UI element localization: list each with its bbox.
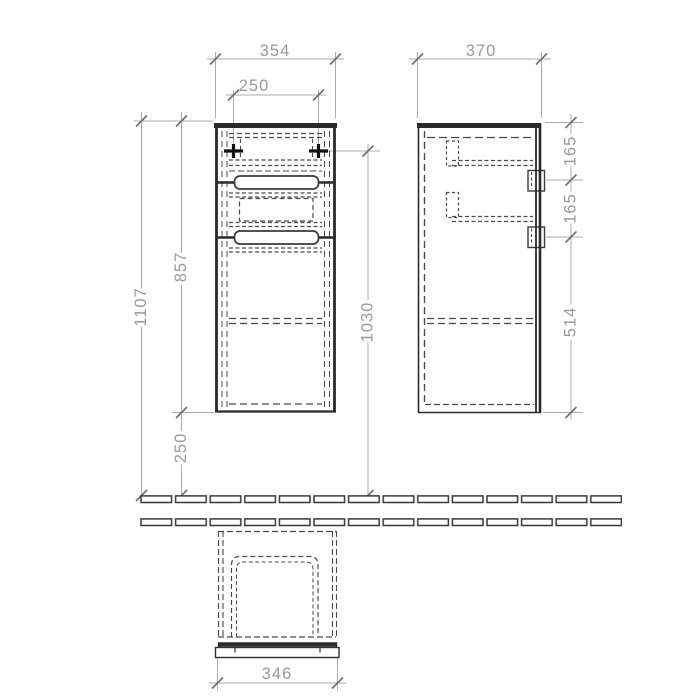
dim-label-top-to-handle: 165: [562, 136, 580, 167]
front-view-outline: [214, 123, 337, 412]
side-view: [417, 123, 545, 413]
top-view: [216, 531, 340, 658]
drawer-handle-2: [217, 231, 334, 244]
dim-label-cabinet-height: 857: [172, 252, 190, 283]
dim-mount-hole-spacing: [226, 90, 326, 148]
mounting-point-cross-right: [309, 144, 328, 158]
dimension-labels: 354 250 370 1107 857 250 1030 165 165 51…: [132, 42, 580, 683]
technical-drawing: 354 250 370 1107 857 250 1030 165 165 51…: [0, 0, 700, 700]
dim-label-hole-spacing: 250: [239, 77, 270, 95]
dim-label-side-depth: 370: [466, 42, 497, 60]
dimension-lines: [134, 52, 583, 690]
drawer-slide-icon-2: [447, 193, 459, 218]
side-view-hidden-lines: [425, 131, 535, 405]
drawer-box-inner: [237, 562, 314, 637]
wall-line-band: [140, 518, 622, 527]
dim-label-handle-to-bottom: 514: [562, 307, 580, 338]
top-view-hidden-lines: [218, 531, 337, 637]
dim-front-width: [207, 52, 344, 118]
dim-side-depth: [409, 52, 551, 118]
dim-label-total-height: 1107: [132, 287, 150, 326]
side-view-outline: [417, 123, 541, 413]
dim-label-top-view-width: 346: [262, 665, 293, 683]
front-view: [214, 123, 337, 412]
dim-label-mount-height: 1030: [359, 302, 377, 343]
top-view-front-panel: [216, 643, 340, 658]
technical-drawing-page: 354 250 370 1107 857 250 1030 165 165 51…: [0, 0, 700, 700]
front-view-hidden-lines: [222, 131, 330, 407]
drawer-box-outline: [232, 557, 319, 638]
wall-section-hatch: [140, 495, 622, 527]
drawer-handle-1: [217, 176, 334, 189]
dim-label-handle-spacing: 165: [562, 193, 580, 224]
dim-label-floor-clearance: 250: [172, 433, 190, 464]
drawer-slide-icon-1: [447, 141, 459, 166]
floor-line-band: [140, 495, 622, 504]
dim-label-front-width: 354: [260, 42, 291, 60]
